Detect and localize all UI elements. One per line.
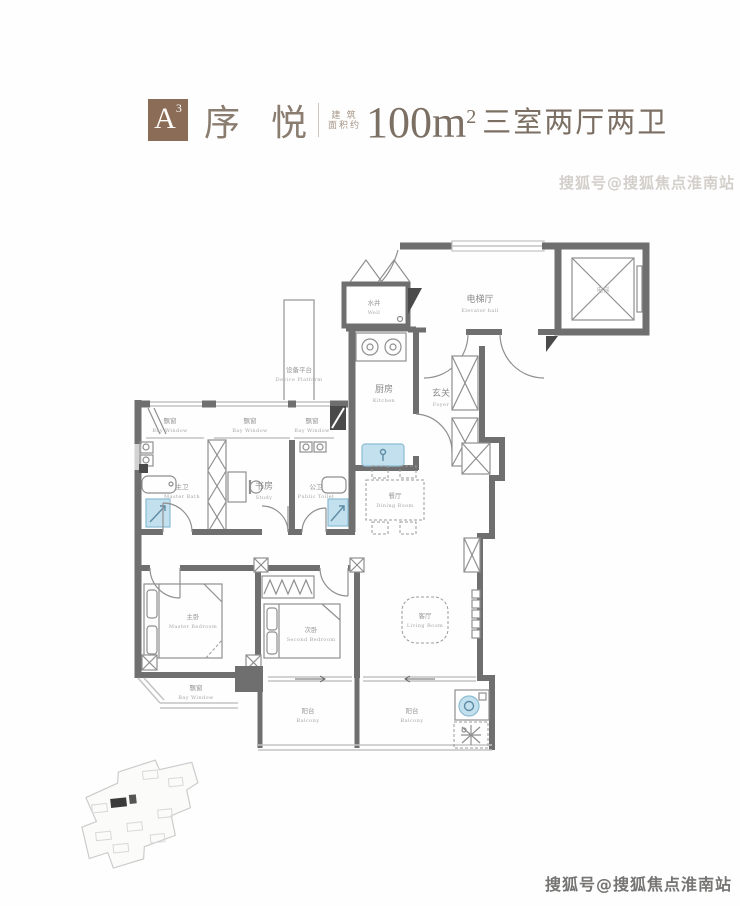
- living-room: 客厅 Living Room: [402, 597, 448, 643]
- public-toilet: 公卫 Public Toilet: [298, 442, 348, 526]
- svg-text:Kitchen: Kitchen: [373, 398, 396, 404]
- balconies: 阳台 Balcony 阳台 Balcony: [258, 676, 492, 750]
- svg-text:Device Platform: Device Platform: [276, 377, 323, 383]
- svg-text:主卫: 主卫: [176, 482, 190, 491]
- svg-text:Balcony: Balcony: [297, 718, 320, 724]
- svg-text:餐厅: 餐厅: [389, 491, 403, 500]
- svg-text:Master Bedroom: Master Bedroom: [169, 624, 217, 630]
- svg-text:Study: Study: [256, 495, 273, 501]
- svg-text:Bay Window: Bay Window: [294, 428, 330, 434]
- site-key-plan: [76, 756, 206, 871]
- svg-text:飘窗: 飘窗: [306, 416, 319, 425]
- svg-text:阳台: 阳台: [302, 706, 315, 715]
- svg-text:阳台: 阳台: [406, 706, 419, 715]
- bottom-bay-window: 飘窗 Bay Window: [138, 666, 263, 708]
- highlighted-unit: [110, 797, 127, 808]
- svg-text:公卫: 公卫: [310, 483, 324, 491]
- svg-text:飘窗: 飘窗: [190, 683, 203, 692]
- svg-text:Elevator hall: Elevator hall: [461, 308, 499, 314]
- elevator-label: 电梯: [597, 285, 611, 294]
- plant: [454, 722, 488, 748]
- svg-text:客厅: 客厅: [419, 611, 433, 620]
- svg-text:设备平台: 设备平台: [286, 365, 312, 374]
- master-bath: 主卫 Master Bath: [139, 442, 200, 527]
- svg-text:Well: Well: [368, 310, 381, 316]
- floor-plan: 电梯厅 Elevator hall 电梯 水井 Well 设备平台 Devic: [0, 0, 740, 906]
- svg-text:Second Bedroom: Second Bedroom: [287, 637, 336, 643]
- dining-room: 餐厅 Dining Room: [366, 466, 424, 534]
- kitchen: 厨房 Kitchen: [346, 329, 452, 532]
- bay-window-glass: [150, 400, 330, 408]
- svg-text:飘窗: 飘窗: [244, 416, 257, 425]
- svg-text:Foyer: Foyer: [433, 402, 450, 408]
- svg-text:Dining Room: Dining Room: [376, 503, 413, 509]
- svg-text:Living Room: Living Room: [407, 623, 443, 629]
- svg-text:水井: 水井: [368, 298, 382, 307]
- svg-text:Balcony: Balcony: [401, 718, 424, 724]
- device-platform: 设备平台 Device Platform: [276, 300, 323, 402]
- washer: [455, 690, 489, 720]
- well-room: 水井 Well: [344, 260, 422, 326]
- svg-text:电梯厅: 电梯厅: [466, 293, 493, 305]
- svg-text:Bay Window: Bay Window: [232, 428, 268, 434]
- floorplan-page: A3 序 悦 建 筑 面积约 100m2 三室两厅两卫 搜狐号@搜狐焦点淮南站 …: [0, 0, 740, 906]
- elevator-shaft: 电梯: [558, 246, 646, 332]
- svg-text:玄关: 玄关: [432, 387, 450, 399]
- svg-text:Bay Window: Bay Window: [152, 428, 188, 434]
- svg-text:厨房: 厨房: [375, 383, 393, 395]
- master-bedroom: 主卧 Master Bedroom: [142, 584, 261, 670]
- study: 书房 Study: [228, 440, 292, 532]
- svg-text:飘窗: 飘窗: [164, 416, 177, 425]
- svg-text:Bay Window: Bay Window: [178, 695, 214, 701]
- svg-text:Public Toilet: Public Toilet: [298, 494, 335, 500]
- svg-text:主卧: 主卧: [187, 612, 201, 621]
- svg-text:书房: 书房: [255, 480, 273, 492]
- closet-column: [208, 440, 226, 532]
- svg-text:次卧: 次卧: [305, 625, 319, 634]
- svg-text:Master Bath: Master Bath: [164, 494, 200, 500]
